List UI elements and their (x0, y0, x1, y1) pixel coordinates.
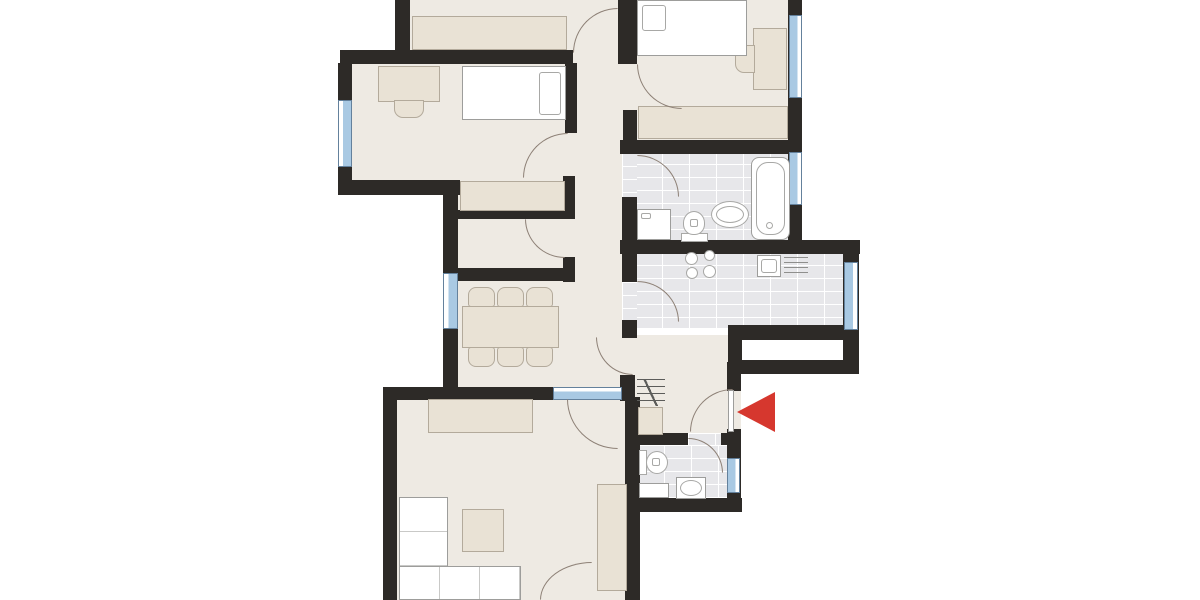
desk-bedroom1 (378, 66, 440, 102)
bathtub (751, 157, 790, 240)
wall-segment-0 (395, 0, 410, 57)
floor-plan-canvas (0, 0, 1200, 600)
wall-segment-11 (620, 140, 802, 154)
window-bathroom-east (789, 152, 802, 205)
wall-segment-8 (458, 210, 575, 219)
wall-segment-29 (383, 387, 397, 600)
dining-table (462, 306, 559, 348)
wall-segment-6 (565, 63, 577, 133)
sink-bathroom (711, 201, 749, 228)
dining-chair-1 (468, 287, 495, 307)
single-bed-bedroom1 (462, 66, 566, 120)
wall-segment-2 (618, 0, 637, 64)
wall-segment-19 (728, 360, 859, 374)
hall-cabinet (638, 407, 663, 435)
wardrobe-bedroom2 (638, 106, 788, 139)
kitchen-sink (757, 255, 781, 277)
wall-segment-13 (622, 197, 637, 245)
sideboard-living (428, 399, 533, 433)
dining-chair-6 (526, 347, 553, 367)
sink-wc (676, 477, 706, 499)
bed-bedroom2 (637, 0, 747, 56)
wc-shelf (639, 483, 669, 498)
wall-segment-15 (622, 254, 637, 282)
toilet-wc (639, 450, 669, 475)
door-gap-bathroom (622, 153, 637, 197)
kitchen-drainer (784, 257, 808, 276)
door-gap-bedroom2 (623, 64, 637, 110)
dining-chair-3 (526, 287, 553, 307)
stove-burners (684, 249, 720, 281)
wall-segment-14 (620, 240, 860, 254)
wall-segment-1 (340, 50, 573, 64)
washing-machine (637, 209, 671, 240)
window-bedroom1-west (338, 100, 352, 167)
wall-segment-30 (623, 110, 637, 140)
coat-rack (637, 379, 665, 406)
coffee-table (462, 509, 504, 552)
wall-segment-23 (727, 362, 741, 391)
entrance-arrow (737, 392, 775, 432)
wardrobe-top-room (412, 16, 567, 50)
wall-segment-18 (728, 325, 859, 340)
wall-segment-4 (338, 180, 460, 195)
window-kitchen-east (844, 262, 858, 330)
wardrobe-alcove (460, 181, 565, 211)
window-wc-east (727, 458, 740, 493)
toilet-bathroom (681, 211, 708, 242)
media-unit-living (597, 484, 627, 591)
dining-chair-4 (468, 347, 495, 367)
wall-segment-27 (625, 498, 742, 512)
chair-bedroom1 (394, 100, 424, 118)
sofa-base (399, 566, 521, 600)
dining-chair-2 (497, 287, 524, 307)
desk-bedroom2 (753, 28, 787, 90)
door-gap-kitchen (622, 282, 637, 320)
window-dining-west (443, 273, 458, 329)
dining-chair-5 (497, 347, 524, 367)
window-bedroom2-east (789, 15, 802, 98)
wall-segment-16 (622, 320, 637, 338)
wall-segment-10 (458, 268, 575, 281)
wall-segment-26 (721, 433, 737, 445)
